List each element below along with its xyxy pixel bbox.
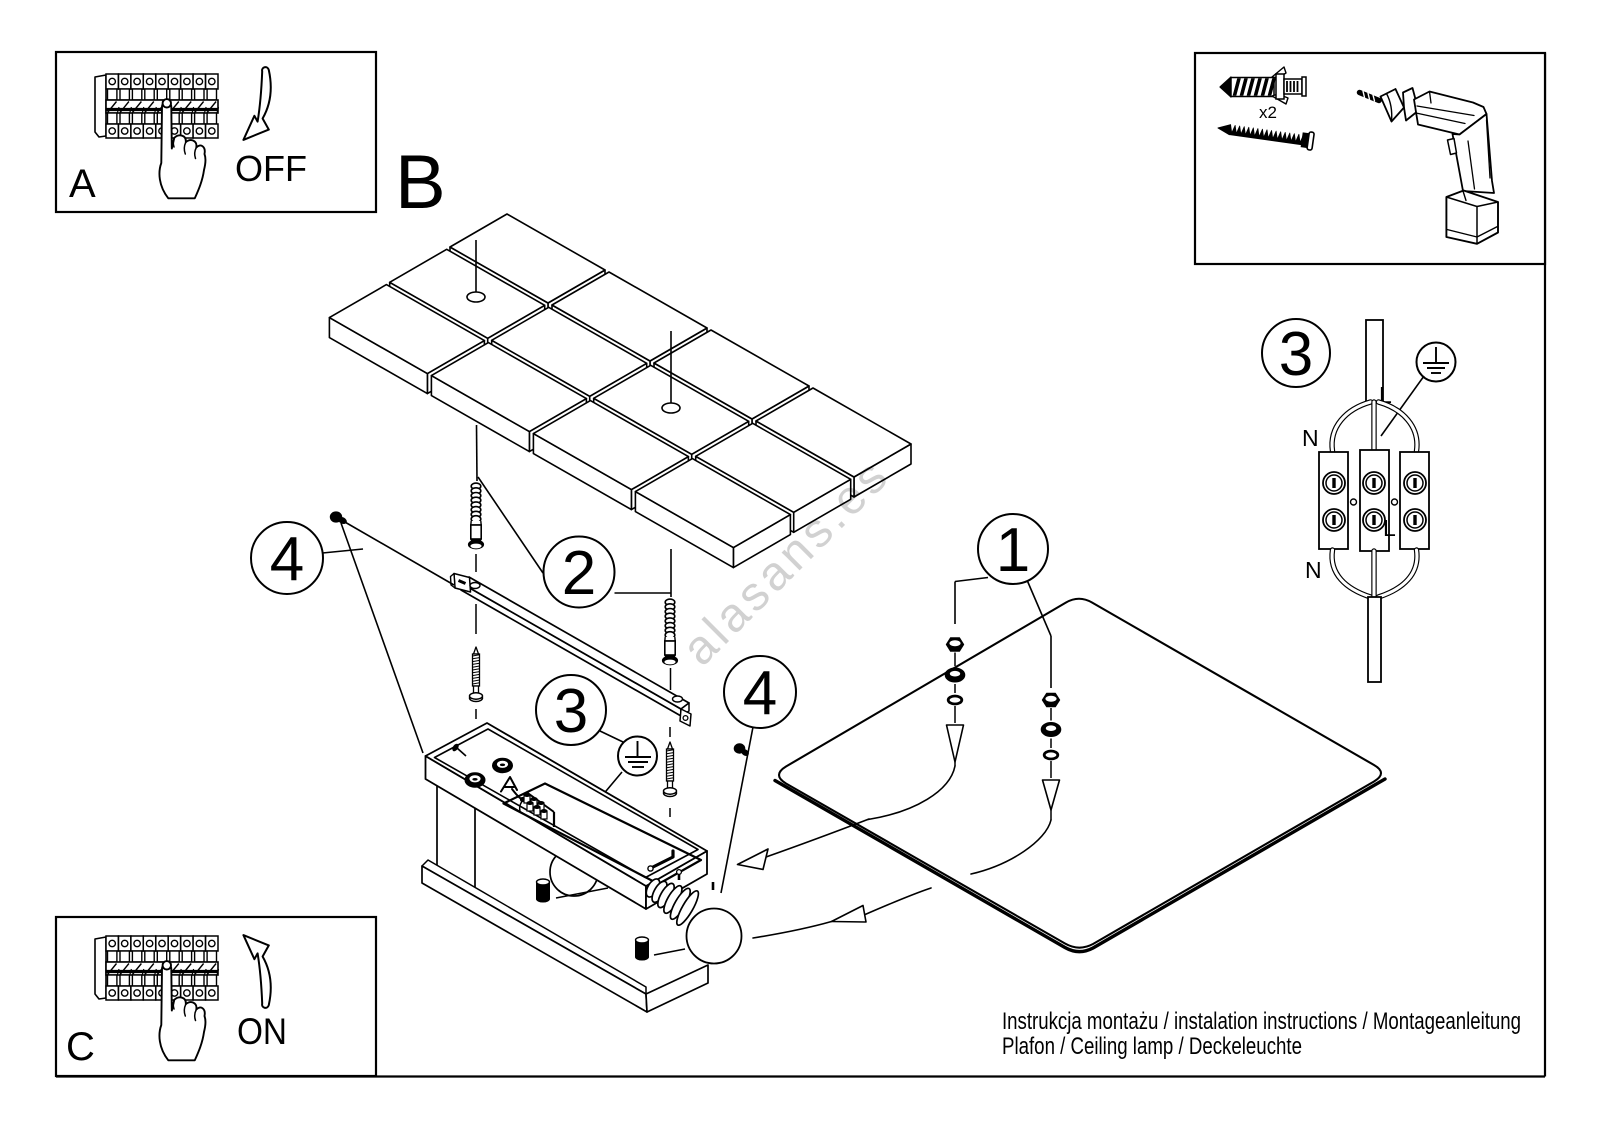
- svg-text:B: B: [395, 140, 446, 225]
- svg-text:N: N: [1305, 557, 1322, 583]
- svg-text:C: C: [66, 1025, 95, 1069]
- svg-text:4: 4: [743, 659, 777, 728]
- svg-text:Instrukcja montażu / instalati: Instrukcja montażu / instalation instruc…: [1002, 1008, 1521, 1035]
- svg-text:3: 3: [1279, 320, 1313, 389]
- svg-text:x2: x2: [1259, 103, 1277, 122]
- svg-text:1: 1: [996, 516, 1030, 585]
- svg-text:L: L: [1383, 515, 1396, 541]
- svg-text:N: N: [1302, 425, 1319, 451]
- svg-text:ON: ON: [237, 1011, 287, 1052]
- svg-text:3: 3: [554, 677, 588, 746]
- svg-text:Plafon / Ceiling lamp / Deckel: Plafon / Ceiling lamp / Deckeleuchte: [1002, 1033, 1302, 1060]
- svg-text:A: A: [69, 162, 96, 206]
- svg-text:OFF: OFF: [235, 148, 307, 189]
- svg-text:2: 2: [562, 539, 596, 608]
- svg-text:4: 4: [270, 525, 304, 594]
